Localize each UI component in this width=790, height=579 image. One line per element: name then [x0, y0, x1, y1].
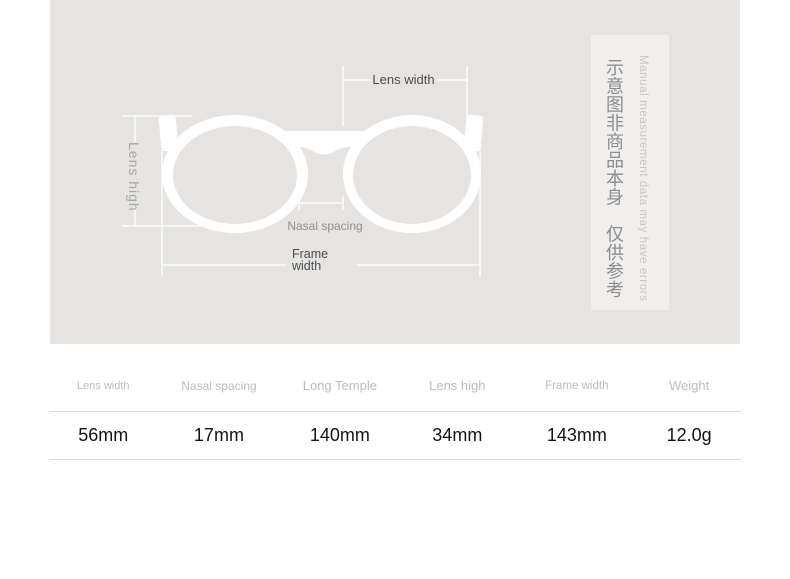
left-lens-opening — [173, 126, 297, 224]
value-frame-width: 143mm — [516, 425, 637, 446]
value-weight: 12.0g — [637, 425, 741, 446]
right-lens-opening — [353, 126, 471, 224]
table-divider-bottom — [50, 459, 741, 460]
header-weight: Weight — [637, 378, 741, 393]
lens-width-label: Lens width — [353, 72, 454, 87]
diagram-canvas: Lens width Lens high Nasal spacing Frame… — [50, 0, 740, 344]
nasal-spacing-label: Nasal spacing — [265, 219, 385, 233]
header-lens-high: Lens high — [398, 378, 516, 393]
spec-table-header-row: Lens width Nasal spacing Long Temple Len… — [50, 360, 741, 411]
value-lens-width: 56mm — [50, 425, 156, 446]
header-long-temple: Long Temple — [281, 378, 398, 393]
header-lens-width: Lens width — [50, 380, 156, 392]
value-lens-high: 34mm — [398, 425, 516, 446]
value-long-temple: 140mm — [281, 425, 398, 446]
disclaimer-chinese-text: 示意图非商品本身 仅供参考 — [603, 58, 625, 299]
disclaimer-panel: 示意图非商品本身 仅供参考 Manual measurement data ma… — [591, 35, 669, 310]
disclaimer-english-text: Manual measurement data may have errors — [637, 55, 649, 301]
spec-table: Lens width Nasal spacing Long Temple Len… — [50, 360, 741, 460]
product-spec-image: Lens width Lens high Nasal spacing Frame… — [0, 0, 790, 579]
header-nasal-spacing: Nasal spacing — [156, 379, 281, 393]
spec-table-value-row: 56mm 17mm 140mm 34mm 143mm 12.0g — [50, 412, 741, 459]
value-nasal-spacing: 17mm — [156, 425, 281, 446]
glasses-silhouette — [158, 114, 483, 233]
lens-high-label: Lens high — [126, 142, 142, 212]
frame-width-label: Frame width — [292, 249, 328, 272]
header-frame-width: Frame width — [516, 380, 637, 392]
